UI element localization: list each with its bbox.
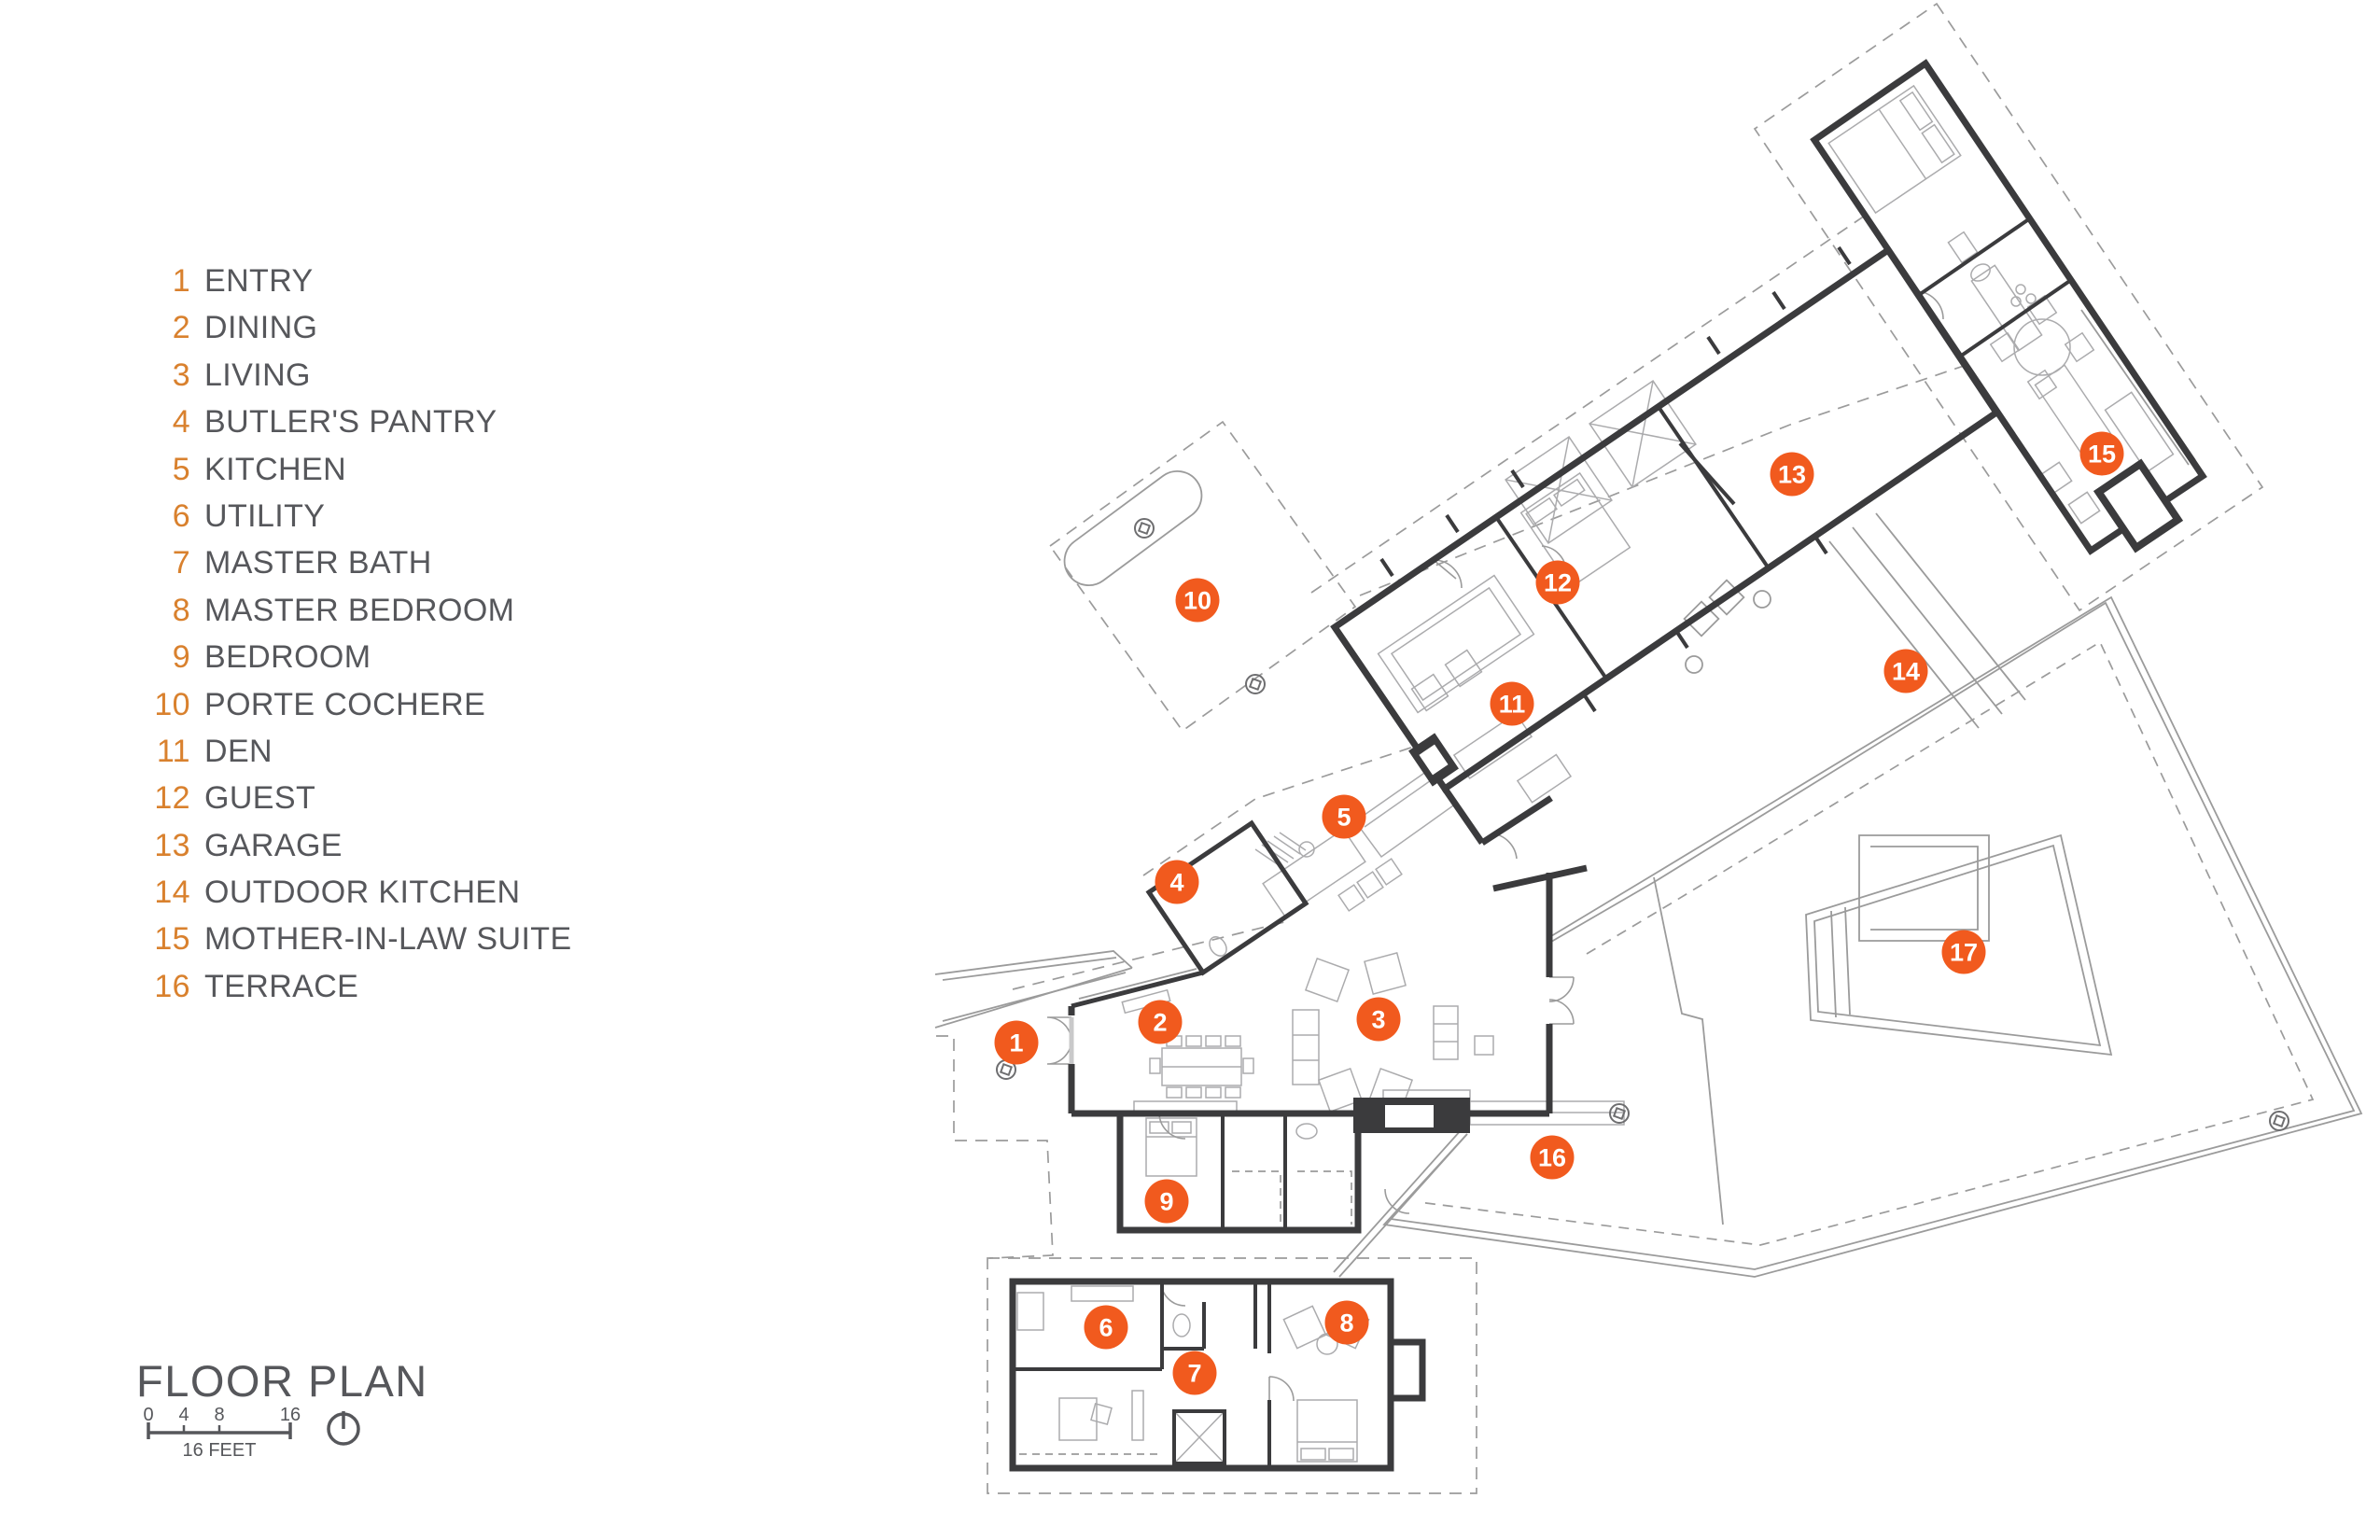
scale-tick-4: 4	[178, 1405, 189, 1425]
legend-item-15: 15MOTHER-IN-LAW SUITE	[138, 916, 572, 962]
room-marker-4: 4	[1155, 861, 1199, 904]
legend-item-number: 4	[138, 399, 190, 445]
legend-item-1: 1ENTRY	[138, 258, 572, 304]
wall-lines	[1013, 63, 2203, 1468]
svg-text:9: 9	[1159, 1188, 1173, 1216]
legend-item-label: PORTE COCHERE	[204, 681, 485, 728]
legend-item-number: 9	[138, 634, 190, 680]
room-marker-13: 13	[1771, 453, 1814, 497]
window-glazing-lines	[1071, 273, 1937, 1281]
legend-item-10: 10PORTE COCHERE	[138, 681, 572, 728]
legend-item-label: GUEST	[204, 775, 315, 821]
legend-item-label: KITCHEN	[204, 446, 346, 493]
legend-item-8: 8MASTER BEDROOM	[138, 587, 572, 634]
legend-item-number: 1	[138, 258, 190, 304]
legend-item-number: 13	[138, 822, 190, 869]
legend-item-12: 12GUEST	[138, 775, 572, 821]
legend-item-number: 15	[138, 916, 190, 962]
legend-item-11: 11DEN	[138, 728, 572, 775]
legend-item-label: ENTRY	[204, 258, 314, 304]
legend-item-label: GARAGE	[204, 822, 343, 869]
floor-plan-page: 1234567891011121314151617 1ENTRY2DINING3…	[0, 0, 2380, 1540]
furniture-lines	[1017, 86, 2173, 1463]
scale-caption: 16 FEET	[183, 1440, 257, 1461]
legend-item-label: BEDROOM	[204, 634, 371, 680]
svg-text:17: 17	[1950, 939, 1978, 967]
legend-item-label: DINING	[204, 304, 317, 351]
svg-text:13: 13	[1778, 461, 1806, 489]
room-marker-10: 10	[1176, 579, 1220, 623]
svg-text:16: 16	[1538, 1144, 1566, 1172]
svg-text:15: 15	[2088, 441, 2116, 469]
legend-item-number: 2	[138, 304, 190, 351]
svg-text:8: 8	[1339, 1309, 1353, 1337]
room-marker-12: 12	[1536, 561, 1580, 605]
legend-item-label: TERRACE	[204, 963, 358, 1010]
scale-tick-8: 8	[214, 1405, 224, 1425]
scale-tick-0: 0	[143, 1405, 153, 1425]
legend-item-label: LIVING	[204, 352, 311, 399]
legend-item-label: BUTLER'S PANTRY	[204, 399, 497, 445]
svg-text:14: 14	[1892, 658, 1920, 686]
legend-item-label: OUTDOOR KITCHEN	[204, 869, 520, 916]
legend-item-7: 7MASTER BATH	[138, 539, 572, 586]
room-marker-14: 14	[1884, 650, 1928, 693]
legend-item-number: 8	[138, 587, 190, 634]
north-arrow-icon	[329, 1411, 358, 1444]
legend-item-16: 16TERRACE	[138, 963, 572, 1010]
room-marker-16: 16	[1531, 1136, 1575, 1180]
legend-item-number: 14	[138, 869, 190, 916]
roof-and-site-dashed-lines	[936, 4, 2313, 1493]
legend-item-3: 3LIVING	[138, 352, 572, 399]
terrace-pool-drive-lines	[935, 305, 2361, 1277]
room-marker-6: 6	[1085, 1306, 1128, 1350]
legend-item-number: 16	[138, 963, 190, 1010]
legend-item-label: DEN	[204, 728, 273, 775]
room-marker-15: 15	[2080, 432, 2124, 476]
svg-text:6: 6	[1099, 1314, 1113, 1342]
legend-list: 1ENTRY2DINING3LIVING4BUTLER'S PANTRY5KIT…	[138, 258, 572, 1010]
legend-item-number: 7	[138, 539, 190, 586]
legend-item-14: 14OUTDOOR KITCHEN	[138, 869, 572, 916]
legend-item-label: MOTHER-IN-LAW SUITE	[204, 916, 572, 962]
legend-item-4: 4BUTLER'S PANTRY	[138, 399, 572, 445]
svg-text:11: 11	[1499, 691, 1526, 719]
room-marker-2: 2	[1139, 1001, 1183, 1044]
room-marker-9: 9	[1145, 1180, 1189, 1224]
svg-text:7: 7	[1187, 1360, 1201, 1388]
legend-item-13: 13GARAGE	[138, 822, 572, 869]
legend-item-label: UTILITY	[204, 493, 325, 539]
legend-item-6: 6UTILITY	[138, 493, 572, 539]
legend-item-5: 5KITCHEN	[138, 446, 572, 493]
svg-text:12: 12	[1544, 569, 1572, 597]
room-marker-1: 1	[995, 1021, 1039, 1065]
svg-text:1: 1	[1009, 1029, 1023, 1057]
legend-item-2: 2DINING	[138, 304, 572, 351]
legend-item-number: 6	[138, 493, 190, 539]
svg-text:2: 2	[1153, 1009, 1167, 1037]
legend-item-label: MASTER BATH	[204, 539, 432, 586]
legend-item-9: 9BEDROOM	[138, 634, 572, 680]
svg-text:4: 4	[1169, 869, 1183, 897]
svg-text:10: 10	[1183, 587, 1211, 615]
scale-bar: 0 4 8 16 16 FEET	[131, 1398, 373, 1473]
door-swing-arcs	[1047, 291, 1943, 1401]
room-marker-8: 8	[1325, 1301, 1369, 1345]
legend-item-number: 11	[138, 728, 190, 775]
legend-item-number: 5	[138, 446, 190, 493]
room-marker-3: 3	[1357, 998, 1401, 1042]
room-marker-11: 11	[1491, 682, 1534, 726]
room-marker-7: 7	[1173, 1351, 1217, 1395]
legend-item-number: 3	[138, 352, 190, 399]
legend: 1ENTRY2DINING3LIVING4BUTLER'S PANTRY5KIT…	[138, 258, 572, 1010]
legend-item-number: 12	[138, 775, 190, 821]
room-marker-17: 17	[1942, 931, 1986, 974]
room-marker-5: 5	[1323, 795, 1366, 839]
scale-tick-16: 16	[280, 1405, 301, 1425]
legend-item-number: 10	[138, 681, 190, 728]
svg-text:3: 3	[1371, 1006, 1385, 1034]
svg-text:5: 5	[1337, 804, 1351, 832]
legend-item-label: MASTER BEDROOM	[204, 587, 514, 634]
